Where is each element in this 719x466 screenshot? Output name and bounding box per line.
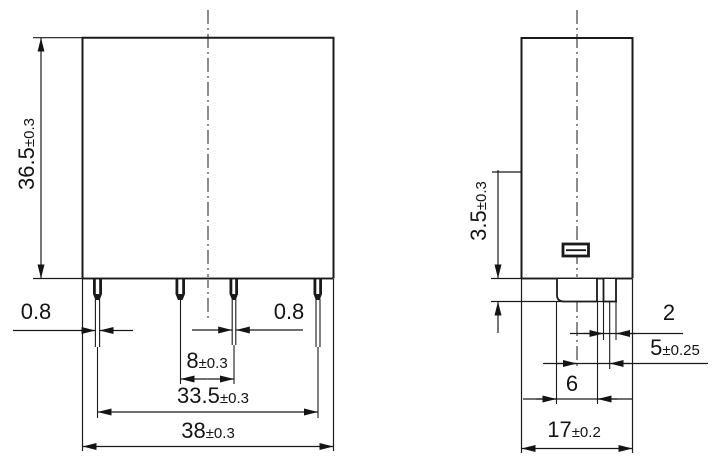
dim-value: 33.5	[177, 383, 220, 408]
dim-tolerance: ±0.3	[220, 390, 249, 407]
front-view	[13, 10, 334, 451]
side-small-pin	[604, 279, 617, 302]
dim-tolerance: ±0.2	[572, 424, 601, 441]
dim-tolerance: ±0.3	[206, 425, 235, 442]
front-pin-3	[230, 279, 239, 384]
dim-value: 3.5	[466, 210, 491, 241]
dim-value: 17	[547, 417, 571, 442]
front-pin-1	[93, 279, 102, 418]
side-slot-detail	[563, 244, 589, 256]
side-blade-width-label: 6	[566, 373, 578, 395]
front-pin-span-label: 33.5±0.3	[177, 385, 249, 407]
dim-tolerance: ±0.3	[21, 118, 38, 147]
dim-value: 0.8	[274, 299, 305, 324]
dim-value: 36.5	[14, 147, 39, 190]
dim-tolerance: ±0.3	[199, 355, 228, 372]
drawing-canvas	[0, 0, 719, 466]
dim-value: 6	[566, 371, 578, 396]
dim-value: 5	[650, 335, 662, 360]
dim-tolerance: ±0.25	[662, 342, 699, 359]
dim-value: 2	[663, 300, 675, 325]
dim-value: 38	[181, 418, 205, 443]
front-pin-4	[314, 279, 323, 418]
side-pin-offset-label: 5±0.25	[650, 337, 700, 359]
dim-value: 8	[186, 348, 198, 373]
dim-value: 0.8	[21, 299, 52, 324]
dimension-drawing: 36.5±0.3 0.8 0.8 8±0.3 33.5±0.3 38±0.3 3…	[0, 0, 719, 466]
side-body-depth-label: 17±0.2	[547, 419, 601, 441]
side-view	[491, 10, 708, 453]
side-standoff-label: 3.5±0.3	[468, 181, 490, 241]
side-standoff-dim	[492, 170, 522, 333]
front-pin-width-right-label: 0.8	[274, 301, 305, 323]
front-pin-pitch-label: 8±0.3	[186, 350, 227, 372]
side-pin-thickness-label: 2	[663, 302, 675, 324]
front-body-width-label: 38±0.3	[181, 420, 235, 442]
front-height-dim	[33, 38, 83, 279]
side-blade-pin	[557, 279, 597, 302]
front-height-label: 36.5±0.3	[16, 118, 38, 190]
dim-tolerance: ±0.3	[473, 181, 490, 210]
front-pin-width-left-label: 0.8	[21, 301, 52, 323]
front-pin-2	[176, 279, 186, 384]
